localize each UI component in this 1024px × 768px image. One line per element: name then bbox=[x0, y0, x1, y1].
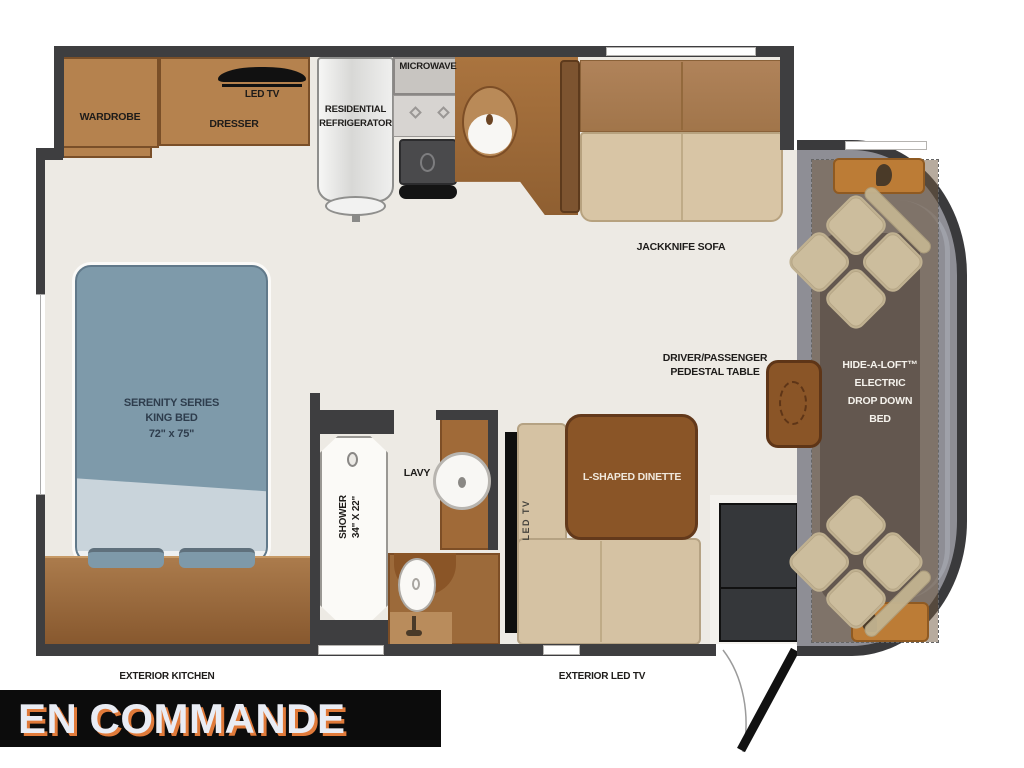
bedroom-tv-base bbox=[222, 84, 302, 87]
pedestal-table-base-icon bbox=[779, 381, 807, 425]
bed-blanket bbox=[77, 472, 266, 552]
refrigerator-foot bbox=[352, 214, 360, 222]
window-cab-top bbox=[845, 141, 927, 150]
pedestal-table-label: DRIVER/PASSENGER PEDESTAL TABLE bbox=[636, 351, 794, 379]
shower-label-line2: 34" X 22" bbox=[351, 496, 362, 538]
rv-floorplan-diagram: SERENITY SERIES KING BED 72" x 75" bbox=[0, 0, 1024, 768]
dinette-tv-bar bbox=[505, 432, 517, 633]
dropdown-bed-label-line2: ELECTRIC bbox=[855, 377, 906, 389]
entry-steps-divider bbox=[719, 587, 798, 589]
range-front-panel bbox=[393, 95, 463, 137]
window-bottom-bath bbox=[318, 645, 384, 655]
refrigerator-base bbox=[325, 196, 386, 216]
refrigerator-label-line1: RESIDENTIAL bbox=[325, 104, 386, 115]
shower-label: SHOWER 34" X 22" bbox=[337, 467, 367, 567]
entry-door bbox=[713, 638, 828, 768]
entry-steps bbox=[719, 503, 798, 642]
dinette-bench-horizontal bbox=[517, 538, 701, 645]
dresser-label: DRESSER bbox=[160, 118, 308, 130]
refrigerator-label-line2: REFRIGERATOR bbox=[319, 118, 392, 129]
window-bottom-dinette bbox=[543, 645, 580, 655]
exterior-kitchen-label: EXTERIOR KITCHEN bbox=[94, 671, 240, 683]
drop-down-bed-label: HIDE-A-LOFT™ ELECTRIC DROP DOWN BED bbox=[822, 357, 938, 428]
dinette-label: L-SHAPED DINETTE bbox=[567, 471, 697, 483]
kitchen-faucet bbox=[486, 114, 493, 125]
door-swing-arc bbox=[723, 650, 746, 752]
wardrobe-label: WARDROBE bbox=[64, 111, 156, 123]
lav-sink-drain bbox=[458, 477, 466, 488]
shower-drain-icon bbox=[347, 452, 358, 467]
wall-bottom bbox=[36, 644, 796, 656]
pedestal-label-line2: PEDESTAL TABLE bbox=[670, 366, 759, 378]
exterior-kitchen-compartment bbox=[37, 556, 310, 645]
bath-wall-shower-top bbox=[312, 410, 394, 434]
bed-pillow-left bbox=[88, 548, 164, 568]
wall-right-upper bbox=[780, 46, 794, 150]
status-banner: EN COMMANDE bbox=[0, 690, 441, 747]
bed-pillow-right bbox=[179, 548, 255, 568]
status-banner-text: EN COMMANDE bbox=[18, 695, 346, 743]
sofa-back-seam bbox=[681, 62, 683, 130]
shower-label-line1: SHOWER bbox=[338, 495, 349, 539]
wardrobe-cabinet bbox=[62, 57, 159, 148]
sofa-seat-seam bbox=[681, 134, 683, 220]
bed-label-line2: KING BED bbox=[145, 412, 197, 424]
dropdown-bed-label-line3: DROP DOWN bbox=[848, 395, 913, 407]
cab-dash-top-console-icon bbox=[876, 164, 892, 186]
bath-wall-shower-bottom bbox=[312, 620, 394, 645]
wardrobe-step bbox=[62, 146, 152, 158]
toilet-flush-base-icon bbox=[406, 630, 422, 636]
dropdown-bed-label-line4: BED bbox=[869, 413, 891, 425]
range-burner bbox=[420, 153, 435, 172]
refrigerator-label: RESIDENTIAL REFRIGERATOR bbox=[318, 103, 393, 132]
dinette-bench-seam bbox=[600, 541, 602, 642]
bed-label-line1: SERENITY SERIES bbox=[124, 397, 219, 409]
range-base bbox=[399, 185, 457, 199]
bed-label-line3: 72" x 75" bbox=[149, 428, 194, 440]
sofa-label: JACKKNIFE SOFA bbox=[601, 241, 761, 253]
bedroom-tv-label: LED TV bbox=[219, 89, 305, 101]
toilet-lower-panel bbox=[390, 612, 452, 644]
king-bed-label: SERENITY SERIES KING BED 72" x 75" bbox=[86, 396, 257, 442]
exterior-tv-label: EXTERIOR LED TV bbox=[528, 671, 676, 683]
toilet-lid-icon bbox=[412, 578, 420, 590]
wall-left-upper bbox=[54, 46, 64, 158]
window-left-bedroom bbox=[36, 294, 45, 495]
lavatory-label: LAVY bbox=[394, 467, 440, 479]
dinette-tv-label: LED TV bbox=[521, 486, 535, 554]
window-top-sofa bbox=[606, 47, 756, 56]
microwave-label: MICROWAVE bbox=[394, 62, 462, 73]
door-leaf bbox=[741, 650, 795, 750]
sofa-armrest bbox=[560, 60, 580, 213]
dropdown-bed-label-line1: HIDE-A-LOFT™ bbox=[842, 359, 917, 371]
pedestal-label-line1: DRIVER/PASSENGER bbox=[663, 352, 768, 364]
